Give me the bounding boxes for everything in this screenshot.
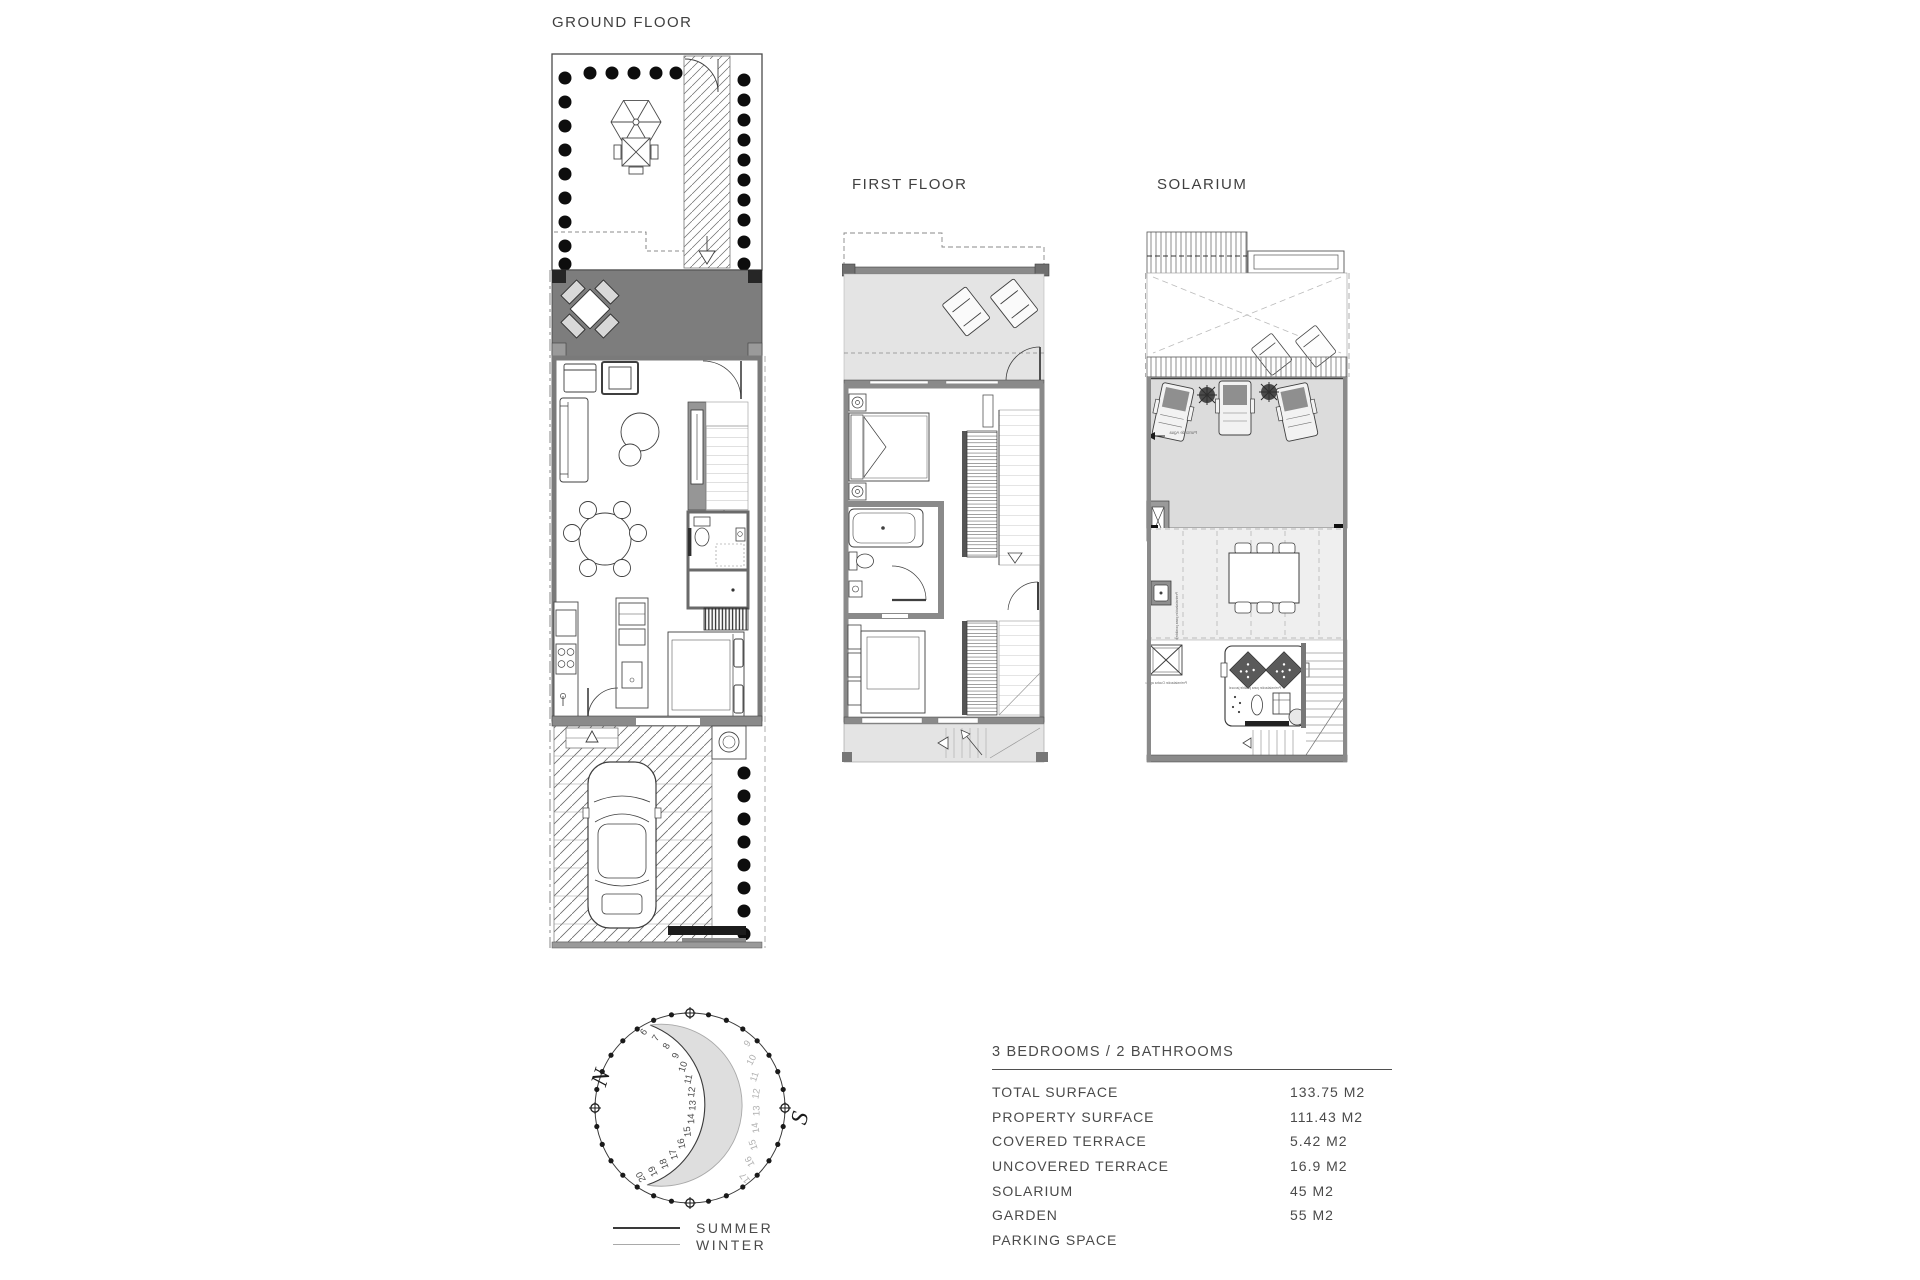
surface-table-rows: TOTAL SURFACE133.75 M2PROPERTY SURFACE11… — [992, 1080, 1392, 1252]
ground-bedroom-bed — [668, 632, 744, 718]
roof-outline — [844, 233, 1044, 267]
spec-label: PARKING SPACE — [992, 1232, 1290, 1248]
summer-hour: 19 — [646, 1164, 660, 1178]
spec-label: PROPERTY SURFACE — [992, 1109, 1290, 1125]
spec-row: UNCOVERED TERRACE16.9 M2 — [992, 1154, 1392, 1179]
surface-table-title: 3 BEDROOMS / 2 BATHROOMS — [992, 1044, 1392, 1070]
pergola-band — [1147, 357, 1347, 377]
storage-strip — [704, 608, 748, 630]
kitchen-counter — [554, 602, 578, 718]
surface-table: 3 BEDROOMS / 2 BATHROOMS TOTAL SURFACE13… — [992, 1044, 1392, 1252]
bed — [861, 631, 925, 713]
spec-value: 111.43 M2 — [1290, 1109, 1392, 1125]
spec-value: 16.9 M2 — [1290, 1158, 1392, 1174]
toilet-tank — [694, 517, 710, 526]
spec-row: GARDEN55 M2 — [992, 1203, 1392, 1228]
spec-label: TOTAL SURFACE — [992, 1084, 1290, 1100]
lower-terrace — [842, 724, 1048, 762]
sun-legend: SUMMERWINTER — [613, 1219, 773, 1253]
south-label: S — [786, 1109, 814, 1127]
stairs-lower — [962, 621, 1040, 715]
summer-hour: 20 — [634, 1169, 649, 1184]
sink — [736, 528, 745, 541]
cardinal-marker — [684, 1197, 696, 1209]
summer-hour: 12 — [686, 1086, 698, 1098]
barbecue-area — [1151, 581, 1171, 605]
solarium-title: SOLARIUM — [1157, 176, 1247, 193]
legend-row: WINTER — [613, 1236, 773, 1253]
summer-hour: 9 — [670, 1051, 682, 1060]
spec-label: SOLARIUM — [992, 1183, 1290, 1199]
sofa — [560, 398, 588, 482]
winter-hour: 15 — [747, 1138, 761, 1152]
summer-hour: 11 — [682, 1073, 695, 1085]
garden-area — [552, 54, 762, 271]
stove — [556, 644, 576, 674]
armchairs — [564, 362, 638, 394]
side-table — [619, 444, 641, 466]
winter-hour: 10 — [745, 1053, 760, 1067]
left-wall — [1147, 377, 1151, 762]
stairwell — [999, 410, 1040, 565]
summer-hour: 14 — [686, 1113, 697, 1124]
summer-hour: 7 — [650, 1033, 662, 1043]
jacuzzi-note: Preinstalación para posible jacuzzi — [1229, 686, 1281, 690]
solarium-lower-zone: Preinstalación Ducha agua caliente Prein… — [1145, 640, 1347, 762]
spec-row: SOLARIUM45 M2 — [992, 1178, 1392, 1203]
bedroom-2 — [848, 625, 925, 713]
legend-row: SUMMER — [613, 1219, 773, 1236]
summer-hour: 8 — [661, 1041, 673, 1051]
water-point-note: Punto de Agua — [1169, 430, 1197, 435]
spec-label: UNCOVERED TERRACE — [992, 1158, 1290, 1174]
garage-hedge-dots — [738, 767, 751, 941]
ground-floor-title: GROUND FLOOR — [552, 14, 693, 31]
spec-value: 5.42 M2 — [1290, 1133, 1392, 1149]
spec-value: 55 M2 — [1290, 1207, 1392, 1223]
first-floor-terrace — [844, 274, 1044, 383]
first-floor-plan — [842, 225, 1052, 770]
right-wall — [1343, 377, 1347, 762]
garage-step — [668, 926, 746, 935]
first-floor-title: FIRST FLOOR — [852, 176, 967, 193]
winter-hour: 16 — [743, 1154, 758, 1169]
spec-label: GARDEN — [992, 1207, 1290, 1223]
legend-label: SUMMER — [696, 1220, 773, 1236]
shower-preinstall — [1150, 645, 1182, 675]
cardinal-marker — [589, 1102, 601, 1114]
jacuzzi-preinstall: Preinstalación para posible jacuzzi — [1221, 646, 1309, 726]
staircase — [688, 402, 748, 529]
sun-path-diagram: 6789101112131415161718192091011121314151… — [545, 1000, 845, 1215]
spec-row: PROPERTY SURFACE111.43 M2 — [992, 1105, 1392, 1130]
summer-hour: 6 — [638, 1027, 650, 1038]
summer-hour: 10 — [677, 1060, 691, 1073]
spec-row: PARKING SPACE — [992, 1228, 1392, 1253]
solarium-deck: Punto de Agua — [1147, 377, 1347, 541]
spec-row: TOTAL SURFACE133.75 M2 — [992, 1080, 1392, 1105]
covered-terrace — [548, 267, 762, 356]
floor-plan-sheet: GROUND FLOOR FIRST FLOOR SOLARIUM — [0, 0, 1920, 1280]
winter-hour: 17 — [738, 1170, 753, 1185]
winter-hour: 12 — [750, 1088, 763, 1100]
living-area — [554, 358, 760, 719]
washbasin — [849, 581, 862, 597]
stair-wall — [1301, 643, 1306, 728]
pergola-strip — [1147, 232, 1247, 278]
winter-line-swatch — [613, 1244, 680, 1245]
winter-hour: 9 — [742, 1038, 754, 1049]
outdoor-dining-table — [1229, 543, 1299, 613]
washing-machine — [712, 726, 746, 759]
toilet — [695, 528, 709, 546]
spec-label: COVERED TERRACE — [992, 1133, 1290, 1149]
summer-hour: 16 — [676, 1137, 689, 1149]
garage — [552, 716, 762, 948]
utility-room — [688, 570, 748, 608]
summer-hour: 15 — [682, 1126, 694, 1138]
toilet — [857, 554, 874, 568]
dining-pergola: Preinstalación para posible barbacoa — [1147, 528, 1347, 655]
solarium-plan: Punto de Agua — [1145, 225, 1355, 765]
cardinal-marker — [684, 1007, 696, 1019]
winter-hour: 11 — [748, 1070, 762, 1083]
summer-hour: 13 — [687, 1100, 699, 1111]
summer-line-swatch — [613, 1227, 680, 1229]
bathroom-door — [688, 528, 691, 556]
car — [583, 762, 661, 928]
spec-value: 133.75 M2 — [1290, 1084, 1392, 1100]
legend-label: WINTER — [696, 1237, 766, 1253]
spec-row: COVERED TERRACE5.42 M2 — [992, 1129, 1392, 1154]
winter-hour: 14 — [750, 1122, 763, 1134]
north-label: N — [586, 1064, 617, 1090]
ground-floor-plan — [548, 50, 768, 950]
kitchen-island — [616, 598, 648, 708]
bathroom — [688, 512, 748, 570]
winter-hour: 13 — [752, 1106, 763, 1117]
spec-value: 45 M2 — [1290, 1183, 1392, 1199]
planter — [1248, 251, 1344, 273]
shower-note: Preinstalación Ducha agua caliente — [1145, 681, 1187, 685]
